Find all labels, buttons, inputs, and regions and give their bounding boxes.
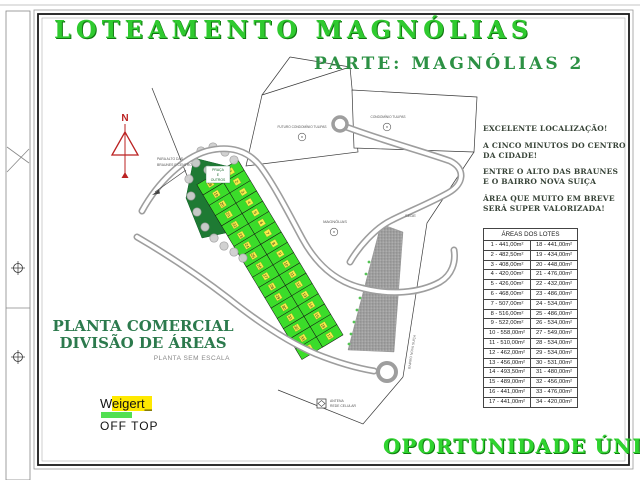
lot-area-cell: 19 - 434,00m² <box>531 250 578 260</box>
subtitle: PARTE: MAGNÓLIAS 2 <box>314 54 584 74</box>
lot-table-row: 12 - 462,00m²29 - 534,00m² <box>484 348 578 358</box>
lot-area-cell: 6 - 468,00m² <box>484 289 531 299</box>
sede-label: SEDE <box>405 213 416 218</box>
lot-area-cell: 22 - 432,00m² <box>531 280 578 290</box>
lot-areas-table: ÁREAS DOS LOTES 1 - 441,00m²18 - 441,00m… <box>483 228 578 408</box>
lot-area-cell: 31 - 480,00m² <box>531 368 578 378</box>
lot-table-row: 2 - 482,50m²19 - 434,00m² <box>484 250 578 260</box>
lot-area-cell: 28 - 534,00m² <box>531 338 578 348</box>
registration-mark <box>11 261 25 275</box>
plan-title-line2: DIVISÃO DE ÁREAS <box>50 335 236 352</box>
lot-area-cell: 34 - 420,00m² <box>531 397 578 407</box>
lot-area-cell: 17 - 441,00m² <box>484 397 531 407</box>
logo-name: Weigert_ <box>100 396 159 411</box>
lot-table-row: 4 - 420,00m²21 - 476,00m² <box>484 270 578 280</box>
promo-line: SERÁ SUPER VALORIZADA! <box>483 204 633 214</box>
magnolias-marker <box>330 228 338 236</box>
promo-line: ÁREA QUE MUITO EM BREVE <box>483 194 633 204</box>
promo-line: EXCELENTE LOCALIZAÇÃO! <box>483 124 633 134</box>
future-condo-label: FUTURO CONDOMÍNIO TULIPAS <box>277 125 326 129</box>
lot-table-row: 3 - 408,00m²20 - 448,00m² <box>484 260 578 270</box>
praca-label: PRAÇA E OUTROS <box>206 166 230 183</box>
plan-title-line1: PLANTA COMERCIAL <box>50 318 236 335</box>
direction-note-line2: BRAUNES E CENTRO <box>157 163 192 167</box>
lot-area-cell: 18 - 441,00m² <box>531 241 578 251</box>
lot-table-row: 6 - 468,00m²23 - 486,00m² <box>484 289 578 299</box>
future-condo-marker <box>298 133 306 141</box>
condo-label: CONDOMÍNIO TULIPAS <box>371 115 406 119</box>
lot-area-cell: 29 - 534,00m² <box>531 348 578 358</box>
lot-table-title: ÁREAS DOS LOTES <box>484 229 578 241</box>
logo-green-bar <box>101 412 132 418</box>
lot-table-row: 14 - 493,50m²31 - 480,00m² <box>484 368 578 378</box>
compass-n-label: N <box>121 113 128 124</box>
lot-area-cell: 20 - 448,00m² <box>531 260 578 270</box>
lot-table-row: 16 - 441,00m²33 - 476,00m² <box>484 387 578 397</box>
promo-line: E O BAIRRO NOVA SUIÇA <box>483 177 633 187</box>
praca-label-line1: PRAÇA <box>212 168 224 172</box>
lot-area-cell: 3 - 408,00m² <box>484 260 531 270</box>
plan-title-block: PLANTA COMERCIAL DIVISÃO DE ÁREAS PLANTA… <box>50 318 236 362</box>
magnolias-label: MAGNÓLIAS <box>323 219 347 224</box>
praca-label-line3: OUTROS <box>211 178 226 182</box>
lot-table-row: 1 - 441,00m²18 - 441,00m² <box>484 241 578 251</box>
opportunity-banner: OPORTUNIDADE ÚNICA!! <box>383 434 640 458</box>
lot-area-cell: 5 - 426,00m² <box>484 280 531 290</box>
lot-table-body: 1 - 441,00m²18 - 441,00m²2 - 482,50m²19 … <box>484 241 578 408</box>
antenna-icon <box>317 399 326 408</box>
logo-name-rest: eigert_ <box>112 396 152 411</box>
lot-area-cell: 23 - 486,00m² <box>531 289 578 299</box>
promo-line: ENTRE O ALTO DAS BRAUNES <box>483 167 633 177</box>
lot-table-row: 8 - 516,00m²25 - 486,00m² <box>484 309 578 319</box>
lot-area-cell: 9 - 522,00m² <box>484 319 531 329</box>
antenna-label-line1: ANTENA <box>330 399 344 403</box>
logo-name-first: W <box>100 396 112 411</box>
promo-line: DA CIDADE! <box>483 151 633 161</box>
lot-area-cell: 25 - 486,00m² <box>531 309 578 319</box>
lot-area-cell: 2 - 482,50m² <box>484 250 531 260</box>
lot-table-row: 11 - 510,00m²28 - 534,00m² <box>484 338 578 348</box>
promo-text: EXCELENTE LOCALIZAÇÃO! A CINCO MINUTOS D… <box>483 124 633 214</box>
logo-subname: OFF TOP <box>100 419 159 433</box>
boundary-lines <box>152 57 477 424</box>
lot-area-cell: 24 - 534,00m² <box>531 299 578 309</box>
lot-area-cell: 15 - 489,00m² <box>484 378 531 388</box>
realtor-logo: Weigert_ OFF TOP <box>100 396 159 433</box>
lot-table-row: 5 - 426,00m²22 - 432,00m² <box>484 280 578 290</box>
lot-table-row: 9 - 522,00m²26 - 534,00m² <box>484 319 578 329</box>
lot-area-cell: 12 - 462,00m² <box>484 348 531 358</box>
lot-area-cell: 7 - 507,00m² <box>484 299 531 309</box>
antenna-label-line2: REDE CELULAR <box>330 404 357 408</box>
lot-area-cell: 13 - 456,00m² <box>484 358 531 368</box>
registration-mark <box>11 350 25 364</box>
lot-table-row: 10 - 558,00m²27 - 549,00m² <box>484 329 578 339</box>
lot-area-cell: 14 - 493,50m² <box>484 368 531 378</box>
lot-area-cell: 21 - 476,00m² <box>531 270 578 280</box>
lot-area-cell: 27 - 549,00m² <box>531 329 578 339</box>
lot-area-cell: 33 - 476,00m² <box>531 387 578 397</box>
lot-area-cell: 8 - 516,00m² <box>484 309 531 319</box>
lot-area-cell: 32 - 456,00m² <box>531 378 578 388</box>
plan-scale-note: PLANTA SEM ESCALA <box>50 355 236 362</box>
lot-area-cell: 16 - 441,00m² <box>484 387 531 397</box>
lot-table-row: 7 - 507,00m²24 - 534,00m² <box>484 299 578 309</box>
main-title: LOTEAMENTO MAGNÓLIAS <box>54 15 533 44</box>
compass-north-icon: N <box>112 113 138 178</box>
lot-area-cell: 1 - 441,00m² <box>484 241 531 251</box>
condo-marker <box>383 123 391 131</box>
lot-area-cell: 10 - 558,00m² <box>484 329 531 339</box>
plan-sheet: 1234567891011121314151617181920212223242… <box>0 0 640 480</box>
lot-area-cell: 30 - 531,00m² <box>531 358 578 368</box>
lot-table-row: 13 - 456,00m²30 - 531,00m² <box>484 358 578 368</box>
lot-area-cell: 4 - 420,00m² <box>484 270 531 280</box>
lot-area-cell: 26 - 534,00m² <box>531 319 578 329</box>
lot-table-row: 15 - 489,00m²32 - 456,00m² <box>484 378 578 388</box>
lot-area-cell: 11 - 510,00m² <box>484 338 531 348</box>
lot-table-row: 17 - 441,00m²34 - 420,00m² <box>484 397 578 407</box>
direction-note-line1: PARA ALTO DAS <box>157 157 184 161</box>
promo-line: A CINCO MINUTOS DO CENTRO <box>483 141 633 151</box>
